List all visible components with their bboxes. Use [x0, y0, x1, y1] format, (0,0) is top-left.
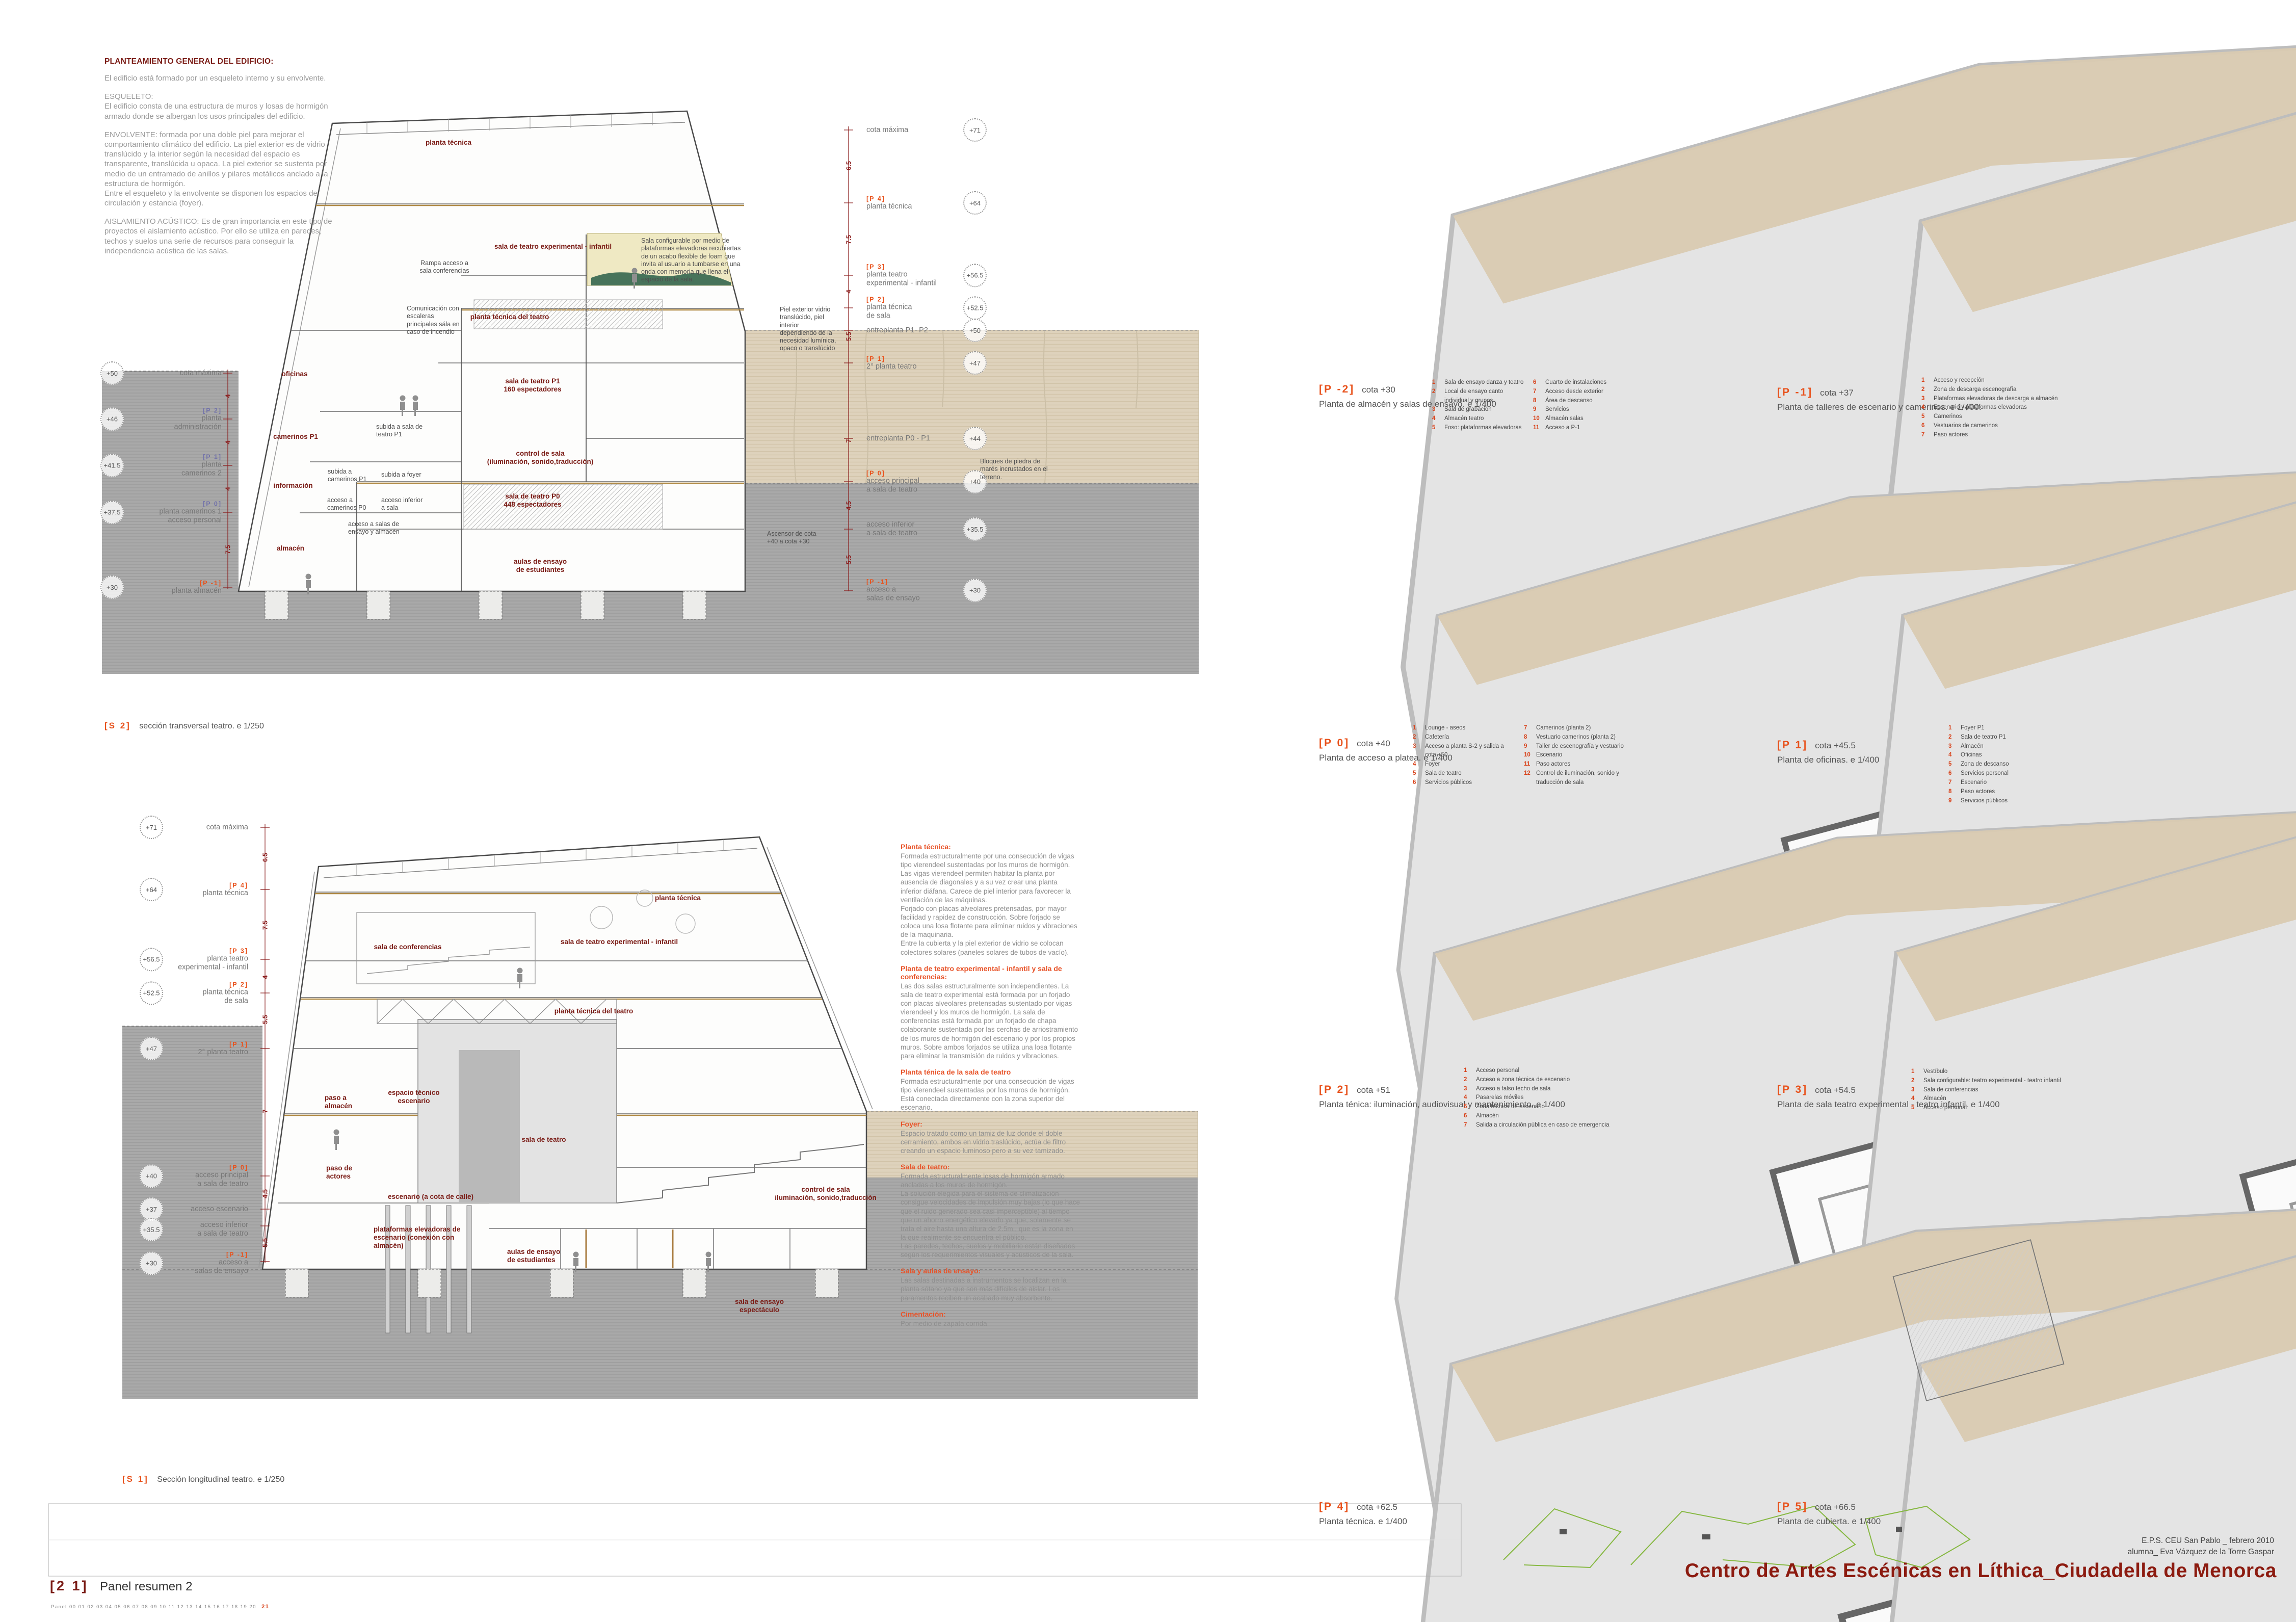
legend-item: 9Servicios: [1533, 405, 1626, 414]
panel-page: PLANTEAMIENTO GENERAL DEL EDIFICIO: El e…: [0, 0, 2296, 1622]
legend-item: 2Local de ensayo canto individual y grup…: [1432, 387, 1525, 406]
legend-item: 4Almacén: [1911, 1094, 2110, 1104]
dimension: 5.5: [261, 1015, 269, 1024]
dimension: 6.5: [845, 161, 853, 170]
level-marker: entreplanta P0 - P1+44: [866, 427, 987, 450]
strip-current-panel: 21: [261, 1604, 269, 1610]
level-label: cota máxima: [206, 823, 248, 832]
elevation-badge: +64: [963, 191, 987, 215]
level-marker: [P 4]planta técnica+64: [866, 191, 987, 215]
legend-item: 4Almacén teatro: [1432, 414, 1525, 424]
level-code: [P 2]: [203, 407, 222, 414]
section-caption: [S 1] Sección longitudinal teatro. e 1/2…: [122, 1474, 284, 1484]
legend-item: 8Paso actores: [1948, 788, 2081, 797]
level-label: acceso inferior a sala de teatro: [197, 1221, 248, 1238]
room-label: oficinas: [281, 370, 307, 378]
legend-item: 4Pasarelas móviles: [1464, 1093, 1637, 1103]
dimension: 4: [224, 440, 232, 444]
legend-item: 3Plataformas elevadoras de descarga a al…: [1921, 395, 2095, 404]
intro-paragraph: ENVOLVENTE: formada por una doble piel p…: [104, 130, 334, 208]
annotation-note: subida a sala de teatro P1: [376, 423, 423, 439]
level-label: acceso principal a sala de teatro: [195, 1171, 248, 1188]
level-marker: [P -1]acceso a salas de ensayo+30: [866, 578, 987, 602]
room-label: espacio técnico escenario: [388, 1089, 439, 1105]
legend-item: 2Sala de teatro P1: [1948, 733, 2081, 742]
legend-item: 1Acceso personal: [1464, 1066, 1637, 1076]
plan-legend: 1Lounge - aseos2Cafetería3Acceso a plant…: [1413, 724, 1627, 788]
level-code: [P -1]: [200, 580, 222, 587]
elevation-badge: +47: [140, 1037, 163, 1060]
dimension: 4: [261, 975, 269, 979]
level-code: [P 4]: [229, 882, 248, 889]
level-marker: acceso inferior a sala de teatro+35.5: [866, 517, 987, 541]
intro-paragraph: ESQUELETO: El edificio consta de una est…: [104, 92, 334, 121]
level-label: entreplanta P1- P2: [866, 326, 928, 335]
level-marker: [P 0]acceso principal a sala de teatro+4…: [866, 469, 987, 493]
annotation-note: acceso a camerinos P0: [327, 496, 366, 512]
level-marker: +46[P 2]planta administración: [100, 407, 222, 431]
level-marker: cota máxima+71: [866, 118, 987, 142]
level-label: 2° planta teatro: [198, 1048, 248, 1057]
plan-code: [P 0]: [1319, 737, 1350, 749]
plan-code: [P 5]: [1777, 1501, 1808, 1512]
legend-item: 9Taller de escenografía y vestuario: [1524, 742, 1627, 751]
legend-item: 2Sala configurable: teatro experimental …: [1911, 1077, 2110, 1086]
plan-cota: cota +37: [1820, 388, 1854, 398]
intro-text-block: PLANTEAMIENTO GENERAL DEL EDIFICIO: El e…: [104, 57, 334, 265]
level-label: planta técnica: [203, 889, 248, 898]
plan-legend: 1Acceso y recepción2Zona de descarga esc…: [1921, 376, 2095, 440]
annotation-note: subida a camerinos P1: [328, 468, 366, 484]
panel-index-strip: Panel 00 01 02 03 04 05 06 07 08 09 10 1…: [51, 1604, 269, 1610]
level-marker: +50cota máxima: [100, 361, 222, 385]
section-caption-text: Sección longitudinal teatro. e 1/250: [157, 1475, 284, 1484]
level-marker: +71cota máxima: [140, 816, 248, 839]
room-label: escenario (a cota de calle): [388, 1193, 473, 1201]
legend-item: 10Escenario: [1524, 751, 1627, 760]
legend-item: 1Vestíbulo: [1911, 1067, 2110, 1077]
room-label: aulas de ensayo de estudiantes: [514, 558, 567, 574]
legend-item: 2Zona de descarga escenografía: [1921, 385, 2095, 395]
annotation-note: acceso a salas de ensayo y almacén: [348, 520, 400, 536]
dimension: 5.5: [261, 1238, 269, 1247]
note-body: Por medio de zapata corrida: [901, 1319, 1080, 1328]
dimension: 4.5: [261, 1189, 269, 1198]
legend-item: 12Control de iluminación, sonido y tradu…: [1524, 769, 1627, 788]
level-marker: +30[P -1]planta almacén: [100, 575, 222, 599]
level-marker: [P 1]2° planta teatro+47: [866, 351, 987, 375]
plan-legend: 1Acceso personal2Acceso a zona técnica d…: [1464, 1066, 1637, 1130]
room-label: almacén: [277, 544, 304, 553]
plan-caption: [P 4]cota +62.5 Planta técnica. e 1/400: [1319, 1501, 1407, 1527]
annotation-note: subida a foyer: [381, 471, 421, 479]
note-heading: Sala y aulas de ensayo:: [901, 1267, 1080, 1275]
level-marker: +52.5[P 2]planta técnica de sala: [140, 981, 248, 1005]
room-label: sala de conferencias: [374, 943, 442, 951]
level-marker: +47[P 1]2° planta teatro: [140, 1037, 248, 1060]
room-label: planta técnica del teatro: [470, 313, 549, 321]
elevation-badge: +64: [140, 878, 163, 901]
level-marker: [P 2]planta técnica de sala+52.5: [866, 296, 987, 320]
level-marker: +37.5[P 0]planta camerinos 1 acceso pers…: [100, 500, 222, 524]
room-label: control de sala (iluminación, sonido,tra…: [487, 450, 594, 466]
room-label: sala de teatro: [521, 1136, 566, 1144]
legend-item: 3Almacén: [1948, 742, 2081, 751]
section-code: [S 1]: [122, 1474, 149, 1484]
legend-item: 3Sala de grabación: [1432, 405, 1525, 414]
dimension: 6.5: [261, 853, 269, 862]
dimension: 7.5: [224, 545, 232, 554]
construction-note: Foyer: Espacio tratado como un tamiz de …: [901, 1120, 1080, 1155]
level-marker: +35.5acceso inferior a sala de teatro: [140, 1218, 248, 1241]
level-label: planta teatro experimental - infantil: [866, 270, 937, 287]
room-label: control de sala iluminación, sonido,trad…: [775, 1186, 877, 1202]
plan-cota: cota +45.5: [1815, 741, 1856, 750]
level-label: cota máxima: [866, 126, 908, 135]
level-marker: +41.5[P 1]planta camerinos 2: [100, 453, 222, 477]
level-label: planta técnica: [866, 202, 912, 211]
student-line: alumna_ Eva Vázquez de la Torre Gaspar: [2128, 1547, 2275, 1558]
plan-cota: cota +51: [1357, 1085, 1390, 1095]
credits-block: E.P.S. CEU San Pablo _ febrero 2010 alum…: [2128, 1535, 2275, 1558]
room-label: planta técnica: [426, 139, 471, 147]
level-label: acceso escenario: [191, 1205, 248, 1214]
plan-code: [P 4]: [1319, 1501, 1350, 1512]
level-code: [P 2]: [866, 296, 885, 303]
level-label: acceso a salas de ensayo: [866, 585, 920, 602]
dimension: 4: [845, 290, 853, 293]
construction-note: Planta de teatro experimental - infantil…: [901, 964, 1080, 1060]
legend-item: 7Escenario: [1948, 778, 2081, 788]
plan-caption: [P 5]cota +66.5 Planta de cubierta. e 1/…: [1777, 1501, 1881, 1527]
legend-item: 1Foyer P1: [1948, 724, 2081, 733]
note-heading: Planta técnica:: [901, 843, 1080, 851]
level-label: planta camerinos 1 acceso personal: [159, 507, 222, 524]
plan-cota: cota +40: [1357, 739, 1390, 748]
room-label: sala de teatro P1 160 espectadores: [504, 377, 561, 394]
plan-cota: cota +62.5: [1357, 1502, 1397, 1512]
dimension: 7: [845, 439, 853, 442]
intro-paragraphs: El edificio está formado por un esquelet…: [104, 73, 334, 256]
room-label: paso de actores: [326, 1164, 352, 1181]
plan-code: [P -2]: [1319, 383, 1355, 395]
note-heading: Sala de teatro:: [901, 1163, 1080, 1171]
elevation-badge: +56.5: [140, 948, 163, 971]
legend-item: 5Sala de teatro: [1413, 769, 1516, 778]
level-marker: +56.5[P 3]planta teatro experimental - i…: [140, 947, 248, 971]
level-code: [P 1]: [203, 453, 222, 460]
elevation-badge: +47: [963, 351, 987, 375]
strip-items: 00 01 02 03 04 05 06 07 08 09 10 11 12 1…: [69, 1604, 256, 1610]
construction-note: Sala y aulas de ensayo: Las salas destin…: [901, 1267, 1080, 1302]
plan-legend: 1Foyer P12Sala de teatro P13Almacén4Ofic…: [1948, 724, 2081, 805]
legend-item: 4Escenario y plataformas elevadoras: [1921, 403, 2095, 412]
elevation-badge: +50: [963, 319, 987, 342]
panel-code: [2 1]: [50, 1578, 89, 1593]
note-body: Las dos salas estructuralmente son indep…: [901, 982, 1080, 1060]
dimension: 7: [261, 1109, 269, 1113]
plan-cota: cota +54.5: [1815, 1085, 1856, 1095]
legend-item: 7Acceso desde exterior: [1533, 387, 1626, 397]
level-code: [P 4]: [866, 195, 885, 202]
legend-item: 11Acceso a P-1: [1533, 424, 1626, 433]
elevation-badge: +52.5: [963, 296, 987, 320]
annotation-note: Sala configurable por medio de plataform…: [641, 237, 743, 284]
legend-item: 8Área de descanso: [1533, 397, 1626, 406]
annotation-note: Piel exterior vidrio translúcido, piel i…: [780, 306, 843, 353]
elevation-badge: +71: [963, 118, 987, 142]
dimension: 4: [224, 487, 232, 490]
plan-code: [P -1]: [1777, 386, 1813, 398]
plan-desc: Planta de oficinas. e 1/400: [1777, 755, 1879, 765]
legend-item: 5Camerinos: [1921, 412, 2095, 422]
level-label: planta camerinos 2: [181, 460, 222, 477]
level-label: planta administración: [174, 414, 222, 431]
level-code: [P 0]: [203, 500, 222, 507]
plan-legend: 1Sala de ensayo danza y teatro2Local de …: [1432, 378, 1626, 433]
note-heading: Planta de teatro experimental - infantil…: [901, 964, 1080, 981]
legend-item: 8Vestuario camerinos (planta 2): [1524, 733, 1627, 742]
level-label: acceso principal a sala de teatro: [866, 477, 919, 493]
panel-number-label: [2 1] Panel resumen 2: [50, 1578, 192, 1594]
legend-item: 7Salida a circulación pública en caso de…: [1464, 1121, 1637, 1130]
legend-item: 3Acceso a planta S-2 y salida a cota +50: [1413, 742, 1516, 761]
legend-item: 5Acceso personal: [1911, 1104, 2110, 1113]
level-marker: +30[P -1]acceso a salas de ensayo: [140, 1251, 248, 1275]
level-label: acceso a salas de ensayo: [195, 1258, 248, 1275]
note-body: Formada estructuralmente por una consecu…: [901, 1077, 1080, 1112]
intro-title: PLANTEAMIENTO GENERAL DEL EDIFICIO:: [104, 57, 334, 66]
legend-item: 3Acceso a falso techo de sala: [1464, 1085, 1637, 1094]
level-code: [P 2]: [229, 981, 248, 988]
level-marker: [P 3]planta teatro experimental - infant…: [866, 263, 987, 287]
plan-code: [P 1]: [1777, 739, 1808, 751]
legend-item: 5Foso: plataformas elevadoras: [1432, 424, 1525, 433]
level-marker: entreplanta P1- P2+50: [866, 319, 987, 342]
elevation-badge: +35.5: [963, 517, 987, 541]
section-code: [S 2]: [104, 721, 131, 730]
room-label: sala de teatro experimental - infantil: [494, 243, 612, 251]
note-body: Las salas destinadas a instrumentos se l…: [901, 1276, 1080, 1302]
elevation-badge: +50: [100, 361, 124, 385]
legend-item: 4Oficinas: [1948, 751, 2081, 760]
level-marker: +40[P 0]acceso principal a sala de teatr…: [140, 1164, 248, 1188]
room-label: información: [273, 482, 312, 490]
legend-item: 1Acceso y recepción: [1921, 376, 2095, 385]
legend-item: 3Sala de conferencias: [1911, 1086, 2110, 1095]
elevation-badge: +41.5: [100, 454, 124, 477]
level-label: cota máxima: [180, 369, 222, 378]
strip-label: Panel: [51, 1604, 67, 1610]
legend-item: 6Servicios personal: [1948, 769, 2081, 778]
legend-item: 2Acceso a zona técnica de escenario: [1464, 1076, 1637, 1085]
room-label: sala de ensayo espectáculo: [735, 1298, 784, 1314]
dimension: 5.5: [845, 555, 853, 564]
intro-paragraph: El edificio está formado por un esquelet…: [104, 73, 334, 83]
level-label: planta teatro experimental - infantil: [178, 954, 248, 971]
elevation-badge: +71: [140, 816, 163, 839]
dimension: 7.5: [845, 235, 853, 244]
level-code: [P -1]: [866, 578, 888, 585]
annotation-note: Bloques de piedra de marés incrustados e…: [980, 458, 1048, 481]
intro-paragraph: AISLAMIENTO ACÚSTICO: Es de gran importa…: [104, 217, 334, 256]
elevation-badge: +30: [963, 579, 987, 602]
room-label: camerinos P1: [273, 433, 318, 441]
note-body: Espacio tratado como un tamiz de luz don…: [901, 1129, 1080, 1155]
level-marker: +64[P 4]planta técnica: [140, 878, 248, 901]
room-label: plataformas elevadoras de escenario (con…: [374, 1225, 460, 1250]
annotation-note: Comunicación con escaleras principales s…: [407, 305, 460, 336]
legend-item: 6Vestuarios de camerinos: [1921, 422, 2095, 431]
annotation-note: Rampa acceso a sala conferencias: [419, 259, 469, 275]
room-label: aulas de ensayo de estudiantes: [507, 1248, 560, 1264]
level-code: [P 1]: [866, 355, 885, 362]
elevation-badge: +52.5: [140, 981, 163, 1005]
legend-item: 11Paso actores: [1524, 760, 1627, 769]
section-caption: [S 2] sección transversal teatro. e 1/25…: [104, 721, 264, 731]
level-label: 2° planta teatro: [866, 362, 917, 371]
level-code: [P 0]: [866, 469, 885, 477]
level-code: [P 0]: [229, 1164, 248, 1171]
annotation-note: acceso inferior a sala: [381, 496, 423, 512]
level-label: acceso inferior a sala de teatro: [866, 520, 917, 537]
room-label: planta técnica: [655, 894, 701, 902]
elevation-badge: +40: [140, 1164, 163, 1188]
plan-legend: 1Vestíbulo2Sala configurable: teatro exp…: [1911, 1067, 2110, 1113]
section-caption-text: sección transversal teatro. e 1/250: [139, 722, 264, 730]
plan-code: [P 2]: [1319, 1084, 1350, 1095]
legend-item: 10Almacén salas: [1533, 414, 1626, 424]
note-heading: Planta ténica de la sala de teatro: [901, 1068, 1080, 1076]
level-code: [P -1]: [226, 1251, 248, 1258]
legend-item: 2Cafetería: [1413, 733, 1516, 742]
legend-item: 7Paso actores: [1921, 431, 2095, 440]
legend-item: 9Servicios públicos: [1948, 797, 2081, 806]
plan-thumbnails: [1396, 28, 2296, 1622]
construction-note: Sala de teatro: Formada estructuralmente…: [901, 1163, 1080, 1259]
level-label: entreplanta P0 - P1: [866, 434, 930, 443]
level-code: [P 3]: [866, 263, 885, 270]
legend-item: 6Cuarto de instalaciones: [1533, 378, 1626, 387]
level-code: [P 1]: [229, 1041, 248, 1048]
legend-item: 4Foyer: [1413, 760, 1516, 769]
construction-notes-column: Planta técnica: Formada estructuralmente…: [901, 835, 1080, 1328]
drawings-canvas: [0, 0, 2296, 1622]
legend-item: 7Camerinos (planta 2): [1524, 724, 1627, 733]
plan-cota: cota +66.5: [1815, 1502, 1856, 1512]
annotation-note: Ascensor de cota +40 a cota +30: [767, 530, 816, 546]
room-label: sala de teatro experimental - infantil: [561, 938, 678, 946]
elevation-badge: +30: [140, 1251, 163, 1275]
plan-caption: [P 1]cota +45.5 Planta de oficinas. e 1/…: [1777, 739, 1879, 765]
elevation-badge: +35.5: [140, 1218, 163, 1241]
level-label: planta almacén: [172, 587, 222, 595]
plan-desc: Planta técnica. e 1/400: [1319, 1516, 1407, 1527]
project-title: Centro de Artes Escénicas en Líthica_Ciu…: [1685, 1560, 2277, 1582]
elevation-badge: +44: [963, 427, 987, 450]
legend-item: 1Lounge - aseos: [1413, 724, 1516, 733]
elevation-badge: +30: [100, 575, 124, 599]
legend-item: 6Almacén: [1464, 1112, 1637, 1121]
panel-title: Panel resumen 2: [100, 1580, 192, 1593]
dimension: 4: [224, 394, 232, 398]
room-label: paso a almacén: [325, 1094, 352, 1110]
plan-desc: Planta de cubierta. e 1/400: [1777, 1516, 1881, 1527]
note-heading: Cimentación:: [901, 1310, 1080, 1318]
dimension: 5.5: [845, 332, 853, 341]
level-label: planta técnica de sala: [866, 303, 912, 320]
plan-code: [P 3]: [1777, 1084, 1808, 1095]
plan-cota: cota +30: [1362, 385, 1395, 395]
note-body: Formada estructuralmente losas de hormig…: [901, 1172, 1080, 1259]
legend-item: 1Sala de ensayo danza y teatro: [1432, 378, 1525, 387]
elevation-badge: +46: [100, 407, 124, 431]
elevation-badge: +37.5: [100, 501, 124, 524]
construction-note: Cimentación: Por medio de zapata corrida: [901, 1310, 1080, 1328]
level-label: planta técnica de sala: [203, 988, 248, 1005]
legend-item: 5Zona técnica de escenario: [1464, 1103, 1637, 1112]
construction-note: Planta ténica de la sala de teatro Forma…: [901, 1068, 1080, 1112]
dimension: 7.5: [261, 921, 269, 930]
construction-note: Planta técnica: Formada estructuralmente…: [901, 843, 1080, 957]
school-line: E.P.S. CEU San Pablo _ febrero 2010: [2128, 1535, 2275, 1547]
legend-item: 6Servicios públicos: [1413, 778, 1516, 788]
legend-item: 5Zona de descanso: [1948, 760, 2081, 769]
elevation-badge: +56.5: [963, 264, 987, 287]
note-body: Formada estructuralmente por una consecu…: [901, 852, 1080, 957]
room-label: planta técnica del teatro: [555, 1007, 634, 1015]
dimension: 4.5: [845, 501, 853, 510]
note-heading: Foyer:: [901, 1120, 1080, 1128]
level-code: [P 3]: [229, 947, 248, 954]
room-label: sala de teatro P0 448 espectadores: [504, 492, 561, 509]
